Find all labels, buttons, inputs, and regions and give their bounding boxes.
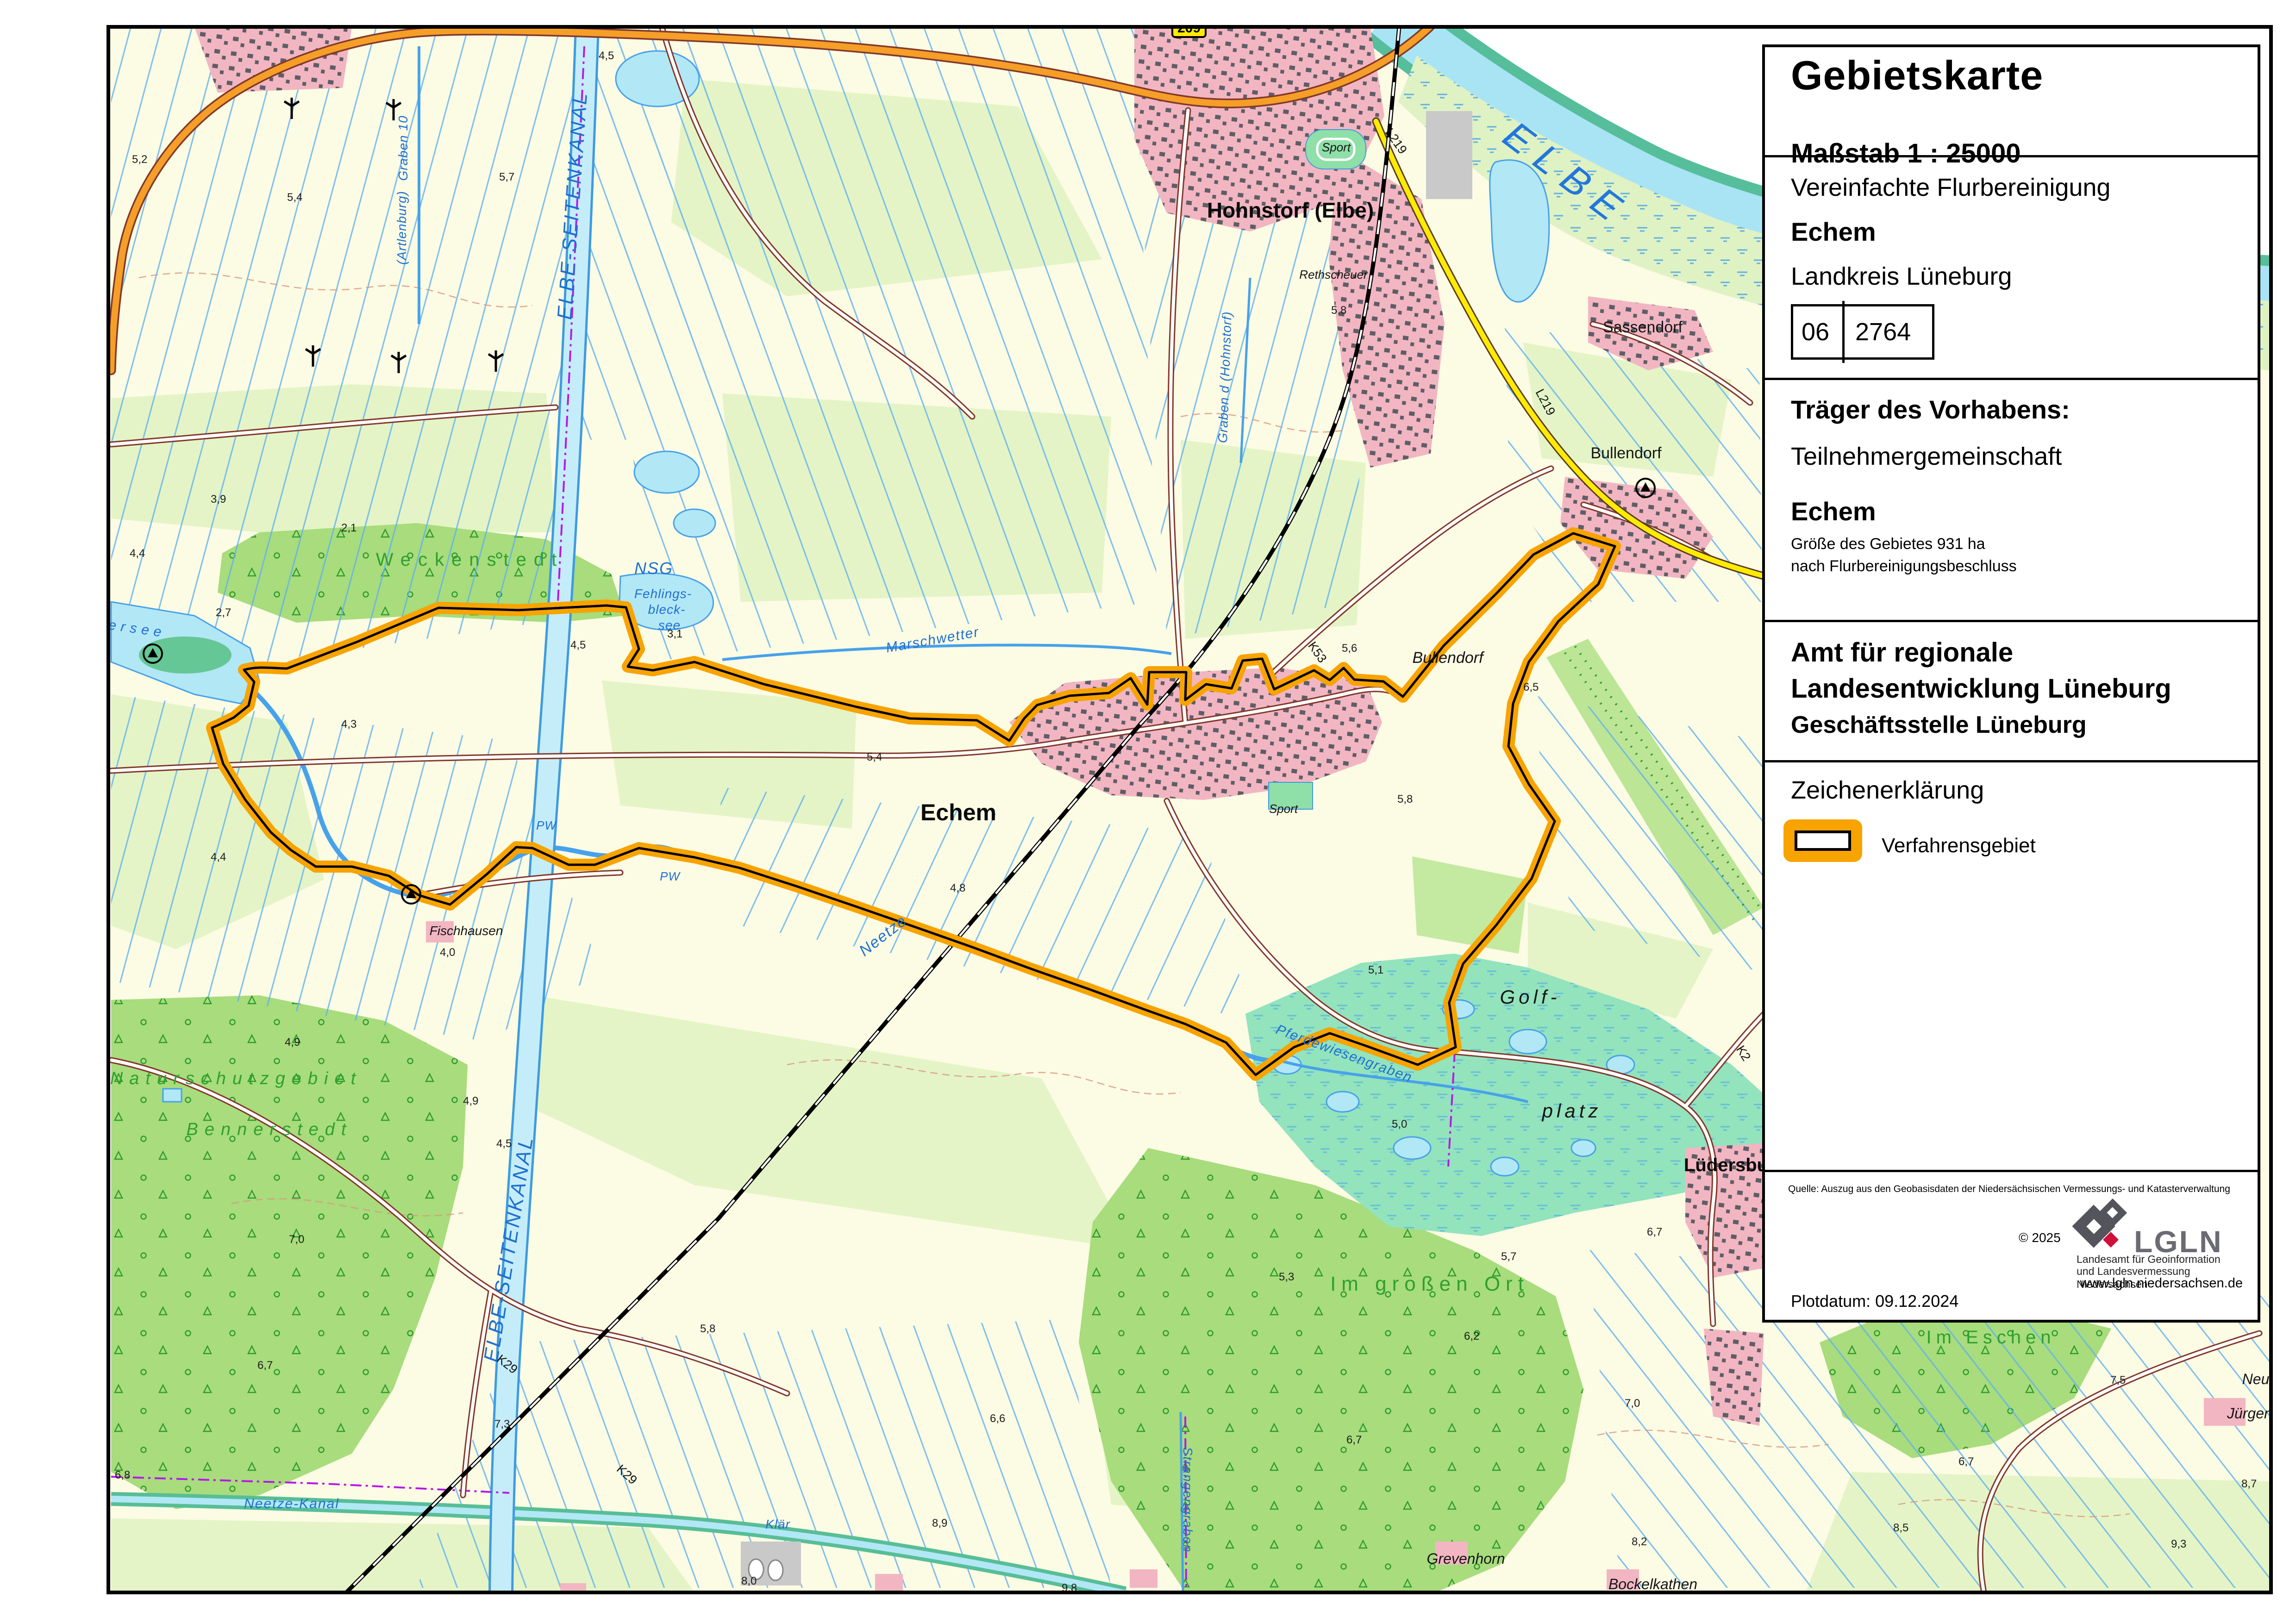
spot-height: 4,4 [130, 547, 145, 560]
map-label: Echem [920, 799, 996, 825]
spot-height: 5,3 [1279, 1271, 1294, 1283]
map-label: Hohnstorf (Elbe) [1207, 198, 1374, 222]
map-label: Graben 10 [396, 115, 410, 181]
spot-height: 5,8 [1331, 304, 1346, 317]
map-label: Im großen Ort [1330, 1273, 1529, 1295]
map-label: platz [1541, 1100, 1602, 1122]
map-label: PW [536, 818, 557, 832]
spot-height: 4,5 [496, 1137, 512, 1150]
map-label: Golf- [1500, 986, 1560, 1008]
map-label: Naturschutzgebiet [110, 1069, 362, 1088]
divider [1765, 620, 2258, 622]
map-label: Im Eschen [1927, 1327, 2056, 1348]
spot-height: 4,5 [570, 639, 586, 651]
area-size: Größe des Gebietes 931 ha [1791, 535, 1985, 553]
map-label: Bullendorf [1590, 444, 1662, 462]
spot-height: 4,9 [463, 1095, 478, 1107]
procedure-type: Vereinfachte Flurbereinigung [1791, 173, 2110, 202]
map-label: Jürgenstorf [2227, 1405, 2296, 1422]
spot-height: 2,7 [216, 606, 231, 619]
divider [1765, 155, 2258, 157]
code-right: 2764 [1855, 318, 1911, 346]
map-label: Bennerstedt [187, 1120, 353, 1139]
spot-height: 5,4 [867, 751, 882, 763]
spot-height: 3,1 [667, 628, 682, 640]
spot-height: 7,3 [494, 1418, 510, 1430]
divider [1765, 1170, 2258, 1172]
map-label: Weckenstedt [376, 549, 564, 570]
copyright: © 2025 [2019, 1230, 2061, 1245]
legend-heading: Zeichenerklärung [1791, 776, 1984, 805]
legend-item-label: Verfahrensgebiet [1882, 834, 2036, 857]
district: Landkreis Lüneburg [1791, 262, 2012, 291]
spot-height: 5,7 [499, 171, 514, 183]
spot-height: 5,2 [132, 153, 147, 166]
map-label: Sassendorf [1603, 318, 1683, 336]
map-label: Bockelkathen [1608, 1576, 1697, 1592]
spot-height: 9,3 [2171, 1538, 2186, 1550]
org-line1: Landesamt für Geoinformation [2077, 1253, 2252, 1266]
spot-height: 8,5 [1893, 1522, 1908, 1534]
spot-height: 6,7 [1647, 1226, 1662, 1238]
spot-height: 4,8 [950, 882, 965, 894]
spot-height: 8,7 [2241, 1478, 2257, 1490]
sponsor-name: Echem [1791, 496, 1876, 526]
spot-height: 5,7 [1501, 1250, 1516, 1263]
spot-height: 6,8 [115, 1469, 130, 1481]
sponsor-heading: Träger des Vorhabens: [1791, 394, 2070, 424]
spot-height: 6,5 [1523, 681, 1539, 693]
map-title: Gebietskarte [1791, 52, 2043, 99]
map-label: Rethscheuer [1299, 268, 1368, 281]
spot-height: 5,1 [1368, 964, 1383, 976]
spot-height: 7,0 [1625, 1397, 1640, 1410]
spot-height: 6,6 [990, 1412, 1005, 1425]
map-label: Sport [1269, 802, 1299, 816]
office-line1: Amt für regionale [1791, 637, 2013, 668]
plot-date: Plotdatum: 09.12.2024 [1791, 1292, 1958, 1311]
spot-height: 5,4 [287, 191, 302, 204]
map-label: Neu [2242, 1371, 2270, 1387]
spot-height: 7,5 [2110, 1374, 2126, 1386]
spot-height: 5,8 [700, 1323, 715, 1335]
map-scale: Maßstab 1 : 25000 [1791, 138, 2021, 169]
map-label: NSG [634, 559, 673, 578]
spot-height: 6,7 [1346, 1434, 1362, 1446]
spot-height: 3,9 [211, 493, 226, 506]
divider [1765, 378, 2258, 380]
map-label: Fehlings- [634, 587, 692, 601]
map-label: Fischhausen [430, 924, 503, 938]
code-left: 06 [1802, 318, 1829, 346]
spot-height: 4,4 [211, 851, 226, 863]
page: 209 ELBEELBE-SEITENKANALELBE-SEITENKANAL… [0, 0, 2296, 1623]
verfahrensgebiet-symbol [1783, 819, 1862, 862]
area-size-note: nach Flurbereinigungsbeschluss [1791, 557, 2017, 575]
spot-height: 5,0 [1392, 1118, 1407, 1130]
office-line2: Landesentwicklung Lüneburg [1791, 673, 2171, 704]
map-label: Bullendorf [1412, 649, 1485, 667]
spot-height: 6,7 [257, 1359, 273, 1372]
spot-height: 8,2 [1632, 1536, 1647, 1548]
spot-height: 4,5 [599, 50, 614, 62]
map-label: Strangengraben [1181, 1447, 1195, 1553]
office-line3: Geschäftsstelle Lüneburg [1791, 711, 2087, 739]
spot-height: 4,3 [341, 718, 357, 730]
map-label: Klär [765, 1517, 790, 1531]
map-label: Sport [1322, 140, 1351, 154]
procedure-name: Echem [1791, 217, 1876, 247]
verfahrensgebiet-symbol-inner [1795, 830, 1851, 851]
divider [1765, 760, 2258, 762]
source-note: Quelle: Auszug aus den Geobasisdaten der… [1788, 1184, 2230, 1195]
spot-height: 5,8 [1397, 793, 1413, 805]
map-label: PW [660, 869, 681, 883]
spot-height: 4,0 [440, 946, 455, 959]
info-panel: Gebietskarte Maßstab 1 : 25000 Vereinfac… [1762, 44, 2260, 1323]
code-box-divider [1842, 301, 1845, 363]
sponsor-body: Teilnehmergemeinschaft [1791, 442, 2062, 471]
spot-height: 6,7 [1958, 1455, 1974, 1468]
spot-height: 6,2 [1464, 1330, 1479, 1342]
spot-height: 8,0 [741, 1575, 757, 1587]
website: www.lgln.niedersachsen.de [2061, 1276, 2243, 1291]
map-label: Grevenhorn [1427, 1550, 1505, 1567]
map-label: (Artlenburg) [394, 191, 409, 265]
spot-height: 5,6 [1342, 642, 1357, 655]
spot-height: 7,0 [289, 1233, 304, 1246]
spot-height: 4,9 [285, 1036, 300, 1049]
spot-height: 8,9 [932, 1517, 947, 1529]
map-label: Neetze-Kanal [244, 1496, 339, 1511]
map-label: bleck- [648, 602, 686, 617]
procedure-code-box: 06 2764 [1791, 304, 1934, 360]
spot-height: 2,1 [341, 522, 357, 534]
